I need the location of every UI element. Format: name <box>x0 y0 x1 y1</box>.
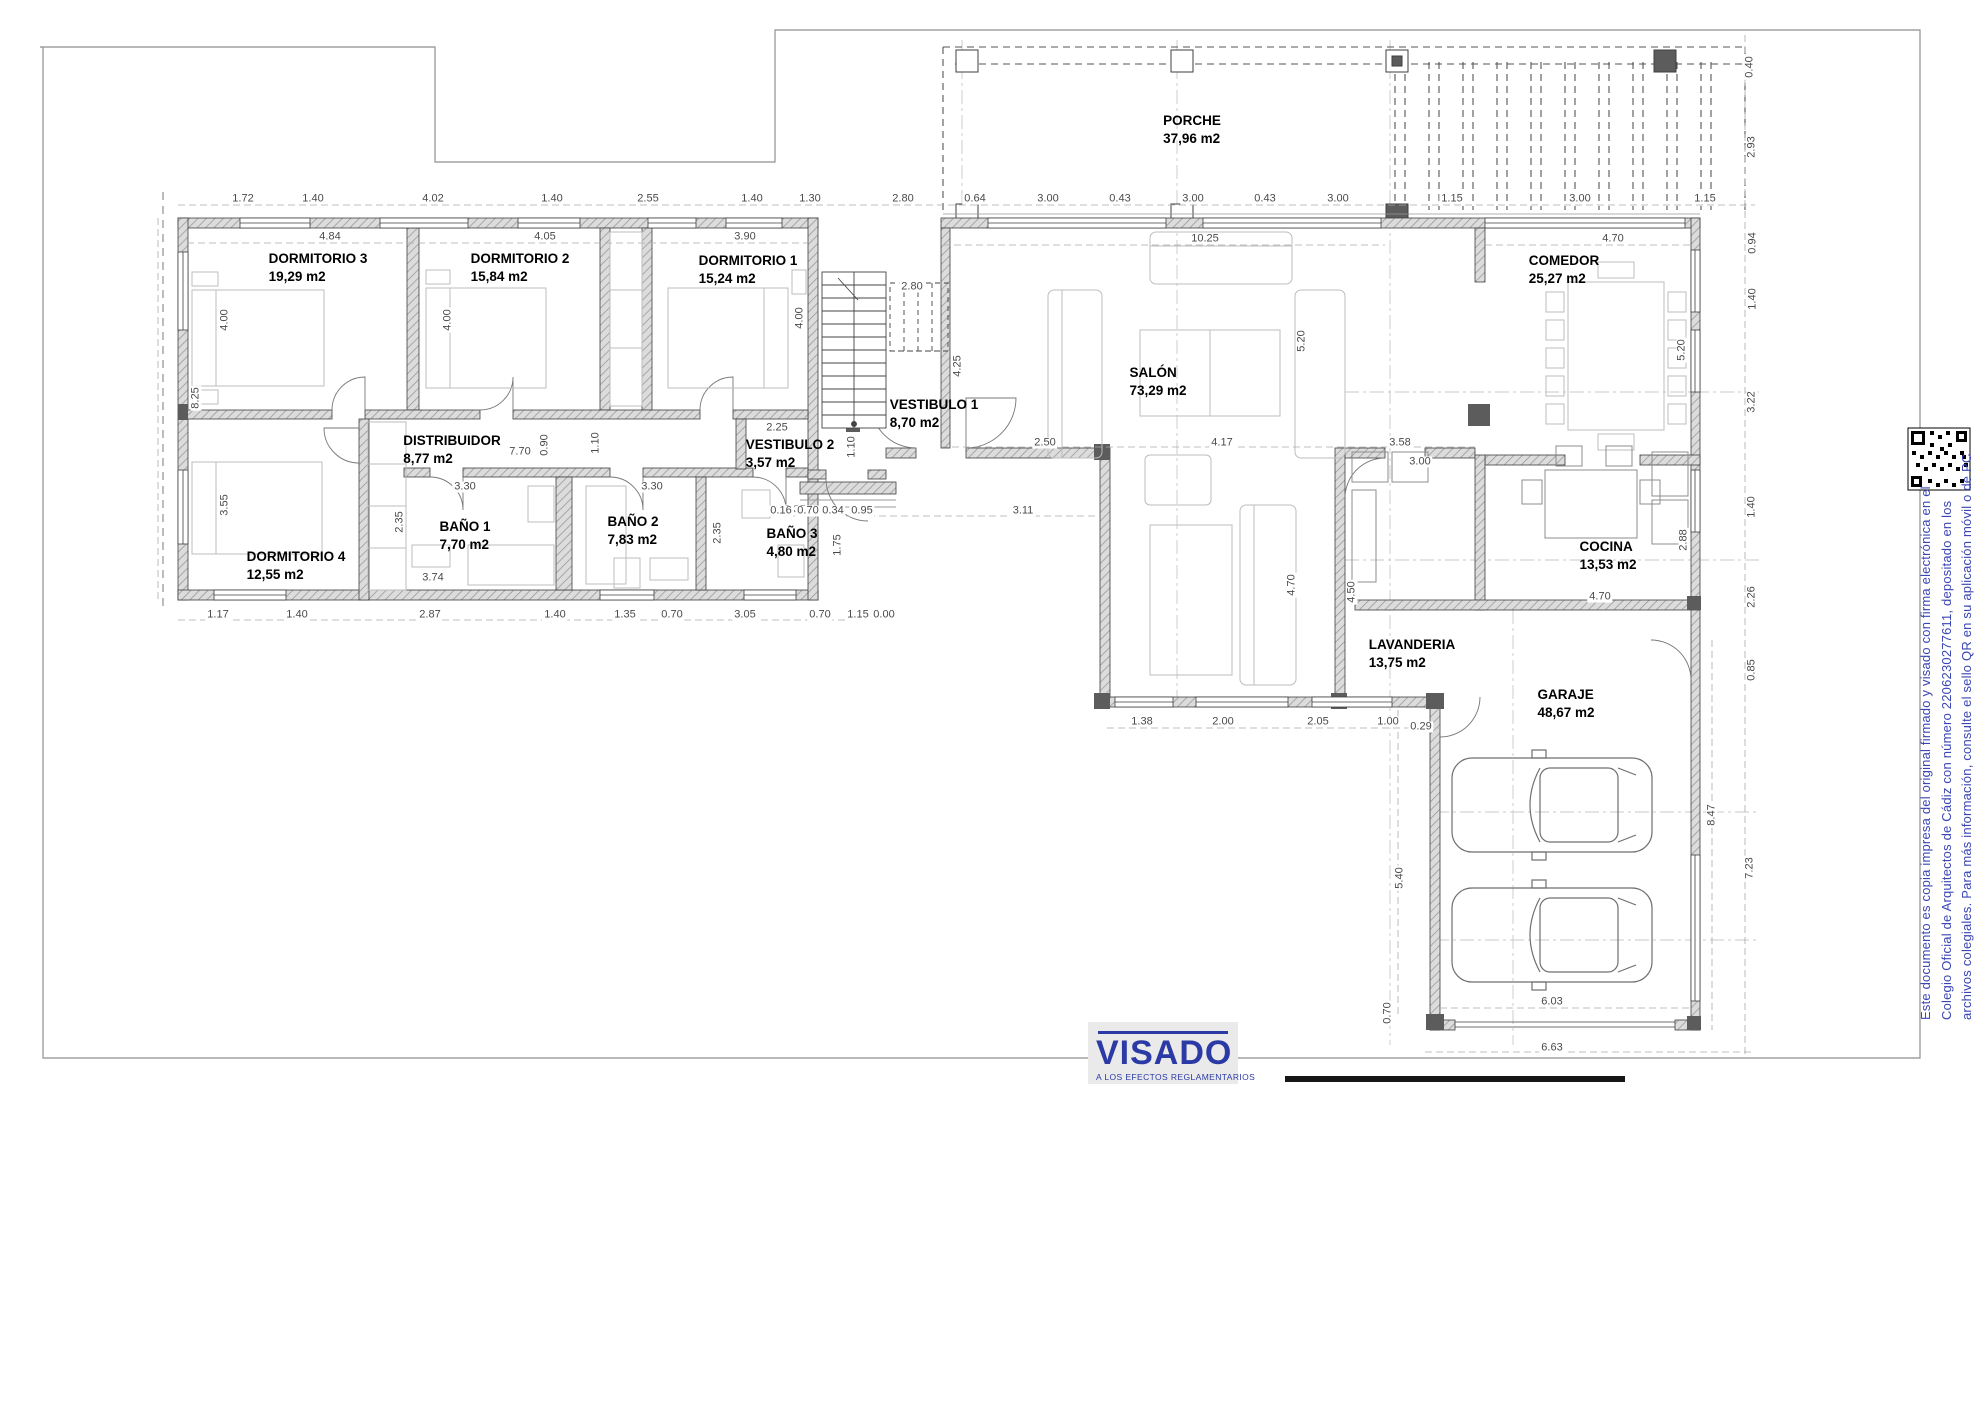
dimension-label: 4.00 <box>795 305 806 330</box>
structural-axes <box>962 40 1760 1045</box>
dimension-label: 1.72 <box>230 194 255 205</box>
dimension-label: 0.95 <box>849 506 874 517</box>
dimension-label: 3.58 <box>1387 438 1412 449</box>
room-label: COCINA 13,53 m2 <box>1579 538 1636 573</box>
dimension-label: 3.55 <box>220 492 231 517</box>
dimension-label: 7.23 <box>1745 855 1756 880</box>
room-label: VESTIBULO 2 3,57 m2 <box>746 436 835 471</box>
room-name: DORMITORIO 3 <box>269 250 368 268</box>
room-label: BAÑO 1 7,70 m2 <box>439 518 490 553</box>
dimension-label: 0.16 <box>768 506 793 517</box>
dimension-label: 0.70 <box>659 610 684 621</box>
dimension-label: 3.11 <box>1011 506 1036 517</box>
dimension-label: 2.25 <box>764 423 789 434</box>
room-area: 8,70 m2 <box>890 414 979 432</box>
wardrobe <box>610 232 642 406</box>
dimension-label: 4.25 <box>953 353 964 378</box>
dimension-label: 0.43 <box>1107 194 1132 205</box>
dimension-label: 4.70 <box>1600 234 1625 245</box>
room-area: 7,83 m2 <box>607 531 658 549</box>
dimension-label: 6.03 <box>1539 997 1564 1008</box>
dimension-label: 2.26 <box>1747 584 1758 609</box>
room-area: 8,77 m2 <box>403 450 501 468</box>
dimension-label: 0.70 <box>795 506 820 517</box>
dimension-label: 4.00 <box>220 307 231 332</box>
room-area: 12,55 m2 <box>247 566 346 584</box>
dimension-label: 0.70 <box>807 610 832 621</box>
dimension-label: 4.17 <box>1209 438 1234 449</box>
room-label: DORMITORIO 1 15,24 m2 <box>699 252 798 287</box>
dimension-label: 3.22 <box>1747 389 1758 414</box>
dimension-label: 10.25 <box>1189 234 1221 245</box>
room-name: BAÑO 3 <box>766 525 817 543</box>
dimension-label: 1.15 <box>845 610 870 621</box>
room-area: 73,29 m2 <box>1129 382 1186 400</box>
dimension-label: 4.70 <box>1287 572 1298 597</box>
dimension-label: 2.88 <box>1679 527 1690 552</box>
dimension-label: 1.38 <box>1129 717 1154 728</box>
dimension-label: 8.47 <box>1707 802 1718 827</box>
certification-line-2: Colegio Oficial de Arquitectos de Cádiz … <box>1939 501 1954 1020</box>
room-label: GARAJE 48,67 m2 <box>1537 686 1594 721</box>
dimension-label: 4.84 <box>317 232 342 243</box>
room-area: 4,80 m2 <box>766 543 817 561</box>
room-name: GARAJE <box>1537 686 1594 704</box>
cars <box>1452 750 1652 990</box>
dimension-label: 4.50 <box>1347 579 1358 604</box>
dimension-label: 0.40 <box>1745 54 1756 79</box>
dimension-label: 0.43 <box>1252 194 1277 205</box>
dimension-label: 0.64 <box>962 194 987 205</box>
room-name: COMEDOR <box>1529 252 1600 270</box>
dimension-label: 3.00 <box>1180 194 1205 205</box>
dimension-label: 2.50 <box>1032 438 1057 449</box>
dimension-label: 0.00 <box>871 610 896 621</box>
dimension-label: 1.00 <box>1375 717 1400 728</box>
room-label: DORMITORIO 2 15,84 m2 <box>471 250 570 285</box>
room-label: COMEDOR 25,27 m2 <box>1529 252 1600 287</box>
floorplan-drawing <box>0 0 1985 1404</box>
dimension-label: 1.15 <box>1439 194 1464 205</box>
dimension-label: 2.80 <box>890 194 915 205</box>
dimension-label: 0.70 <box>1383 1000 1394 1025</box>
dimension-label: 3.00 <box>1567 194 1592 205</box>
windows <box>178 218 1700 1027</box>
dimension-label: 1.15 <box>1692 194 1717 205</box>
dimension-label: 3.00 <box>1407 457 1432 468</box>
room-name: DISTRIBUIDOR <box>403 432 501 450</box>
dimension-label: 1.40 <box>542 610 567 621</box>
garage-door <box>1455 1022 1675 1027</box>
room-label: DORMITORIO 3 19,29 m2 <box>269 250 368 285</box>
dimension-label: 5.40 <box>1395 865 1406 890</box>
dimension-label: 4.05 <box>532 232 557 243</box>
dimension-label: 8.25 <box>191 385 202 410</box>
room-label: DISTRIBUIDOR 8,77 m2 <box>403 432 501 467</box>
dimension-label: 7.70 <box>507 447 532 458</box>
room-label: SALÓN 73,29 m2 <box>1129 364 1186 399</box>
room-name: COCINA <box>1579 538 1636 556</box>
room-area: 13,53 m2 <box>1579 556 1636 574</box>
porch-pergola <box>943 47 1745 214</box>
room-label: BAÑO 2 7,83 m2 <box>607 513 658 548</box>
dimension-label: 1.40 <box>300 194 325 205</box>
dimension-label: 3.74 <box>420 573 445 584</box>
room-label: BAÑO 3 4,80 m2 <box>766 525 817 560</box>
dimension-label: 4.00 <box>443 307 454 332</box>
room-name: DORMITORIO 4 <box>247 548 346 566</box>
dimension-label: 2.35 <box>395 509 406 534</box>
doors <box>324 377 1691 737</box>
room-area: 13,75 m2 <box>1369 654 1456 672</box>
car-2 <box>1452 880 1652 990</box>
dimension-label: 2.80 <box>899 282 924 293</box>
dimension-label: 3.00 <box>1035 194 1060 205</box>
closets <box>368 422 406 590</box>
dimension-label: 1.35 <box>612 610 637 621</box>
room-label: VESTIBULO 1 8,70 m2 <box>890 396 979 431</box>
room-area: 7,70 m2 <box>439 536 490 554</box>
room-area: 3,57 m2 <box>746 454 835 472</box>
room-area: 37,96 m2 <box>1163 130 1221 148</box>
stamp-subtitle: A LOS EFECTOS REGLAMENTARIOS <box>1096 1072 1255 1082</box>
visado-stamp: VISADO A LOS EFECTOS REGLAMENTARIOS <box>1088 1022 1238 1084</box>
dimension-label: 2.00 <box>1210 717 1235 728</box>
dimension-label: 2.55 <box>635 194 660 205</box>
dimension-label: 3.00 <box>1325 194 1350 205</box>
bed-dorm3 <box>192 272 324 404</box>
room-label: PORCHE 37,96 m2 <box>1163 112 1221 147</box>
dimension-label: 0.85 <box>1747 657 1758 682</box>
dimension-label: 3.90 <box>732 232 757 243</box>
dimension-label: 0.29 <box>1408 722 1433 733</box>
dimension-label: 2.05 <box>1305 717 1330 728</box>
dimension-label: 0.90 <box>540 432 551 457</box>
certification-line-3: archivos colegiales. Para más informació… <box>1959 453 1974 1020</box>
bed-dorm1 <box>668 270 806 388</box>
dimension-label: 3.30 <box>452 482 477 493</box>
car-1 <box>1452 750 1652 860</box>
dimension-label: 1.30 <box>797 194 822 205</box>
sofa-set-lower-salon <box>1145 455 1296 685</box>
bed-dorm4 <box>192 462 322 554</box>
dimension-label: 6.63 <box>1539 1043 1564 1054</box>
room-name: DORMITORIO 1 <box>699 252 798 270</box>
dimension-label: 2.35 <box>713 520 724 545</box>
dimension-label: 1.17 <box>205 610 230 621</box>
room-area: 48,67 m2 <box>1537 704 1594 722</box>
dimension-label: 0.94 <box>1748 230 1759 255</box>
dimension-label: 1.10 <box>591 430 602 455</box>
certification-line-1: Este documento es copia impresa del orig… <box>1918 486 1933 1020</box>
room-name: DORMITORIO 2 <box>471 250 570 268</box>
dimension-label: 1.40 <box>1748 286 1759 311</box>
room-area: 15,84 m2 <box>471 268 570 286</box>
dimension-label: 0.34 <box>820 506 845 517</box>
room-label: DORMITORIO 4 12,55 m2 <box>247 548 346 583</box>
dimension-label: 1.40 <box>284 610 309 621</box>
room-name: LAVANDERIA <box>1369 636 1456 654</box>
dimension-lines <box>158 35 1755 1055</box>
room-name: VESTIBULO 1 <box>890 396 979 414</box>
room-name: SALÓN <box>1129 364 1186 382</box>
ground-line <box>1285 1076 1625 1082</box>
room-area: 25,27 m2 <box>1529 270 1600 288</box>
dimension-label: 4.02 <box>420 194 445 205</box>
dimension-label: 2.87 <box>417 610 442 621</box>
room-name: VESTIBULO 2 <box>746 436 835 454</box>
room-name: PORCHE <box>1163 112 1221 130</box>
walls <box>178 218 1700 1030</box>
stamp-title: VISADO <box>1096 1036 1232 1070</box>
dimension-label: 3.30 <box>639 482 664 493</box>
dimension-label: 5.20 <box>1297 328 1308 353</box>
floorplan-sheet: DORMITORIO 3 19,29 m2 DORMITORIO 2 15,84… <box>0 0 1985 1404</box>
room-area: 15,24 m2 <box>699 270 798 288</box>
room-label: LAVANDERIA 13,75 m2 <box>1369 636 1456 671</box>
dimension-label: 3.05 <box>732 610 757 621</box>
room-area: 19,29 m2 <box>269 268 368 286</box>
dimension-label: 5.20 <box>1677 337 1688 362</box>
dimension-label: 1.75 <box>833 532 844 557</box>
dimension-label: 2.93 <box>1747 134 1758 159</box>
dining-table <box>1546 262 1686 450</box>
dimension-label: 1.10 <box>847 434 858 459</box>
room-name: BAÑO 1 <box>439 518 490 536</box>
room-name: BAÑO 2 <box>607 513 658 531</box>
dimension-label: 1.40 <box>1747 494 1758 519</box>
dimension-label: 1.40 <box>539 194 564 205</box>
dimension-label: 4.70 <box>1587 592 1612 603</box>
dimension-label: 1.40 <box>739 194 764 205</box>
